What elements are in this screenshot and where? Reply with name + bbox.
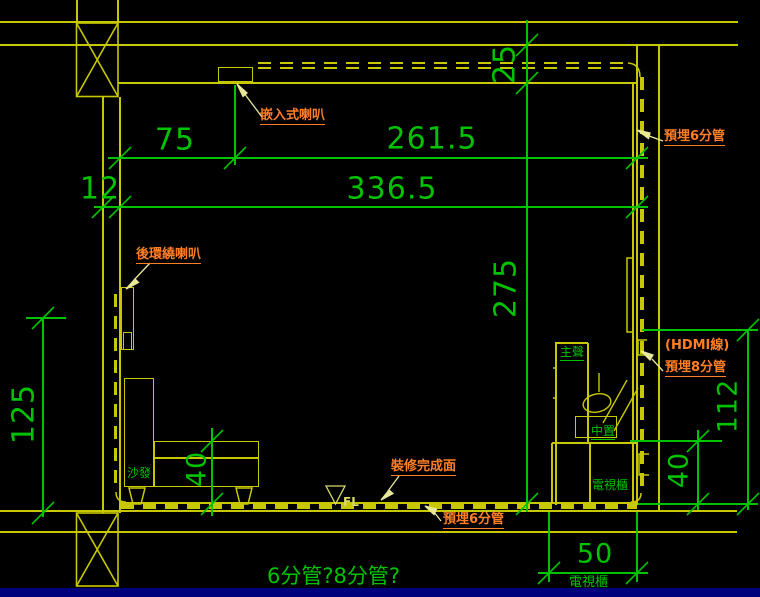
dim-text-25: 25 [488, 44, 523, 84]
dim-text-336-5: 336.5 [347, 172, 438, 207]
label-question-note: 6分管?8分管? [267, 560, 400, 590]
dim-text-261-5: 261.5 [387, 122, 478, 157]
dim-text-50: 50 [577, 539, 613, 570]
label-rear-surround-speaker: 後環繞喇叭 [136, 248, 201, 264]
dim-text-125: 125 [7, 384, 42, 444]
label-sofa: 沙發 [127, 467, 151, 480]
label-conduit6-top: 預埋6分管 [664, 130, 725, 146]
speaker-symbol [581, 373, 638, 431]
label-floor-level: FL [343, 495, 359, 509]
label-main-speaker: 主聲 [560, 346, 584, 361]
drawing-symbols-layer [0, 0, 760, 597]
column-top-left [77, 23, 119, 97]
conduit-elbows [116, 63, 649, 502]
dim-text-40-sofa: 40 [182, 451, 213, 487]
label-finish-surface: 裝修完成面 [391, 460, 456, 476]
label-center-speaker: 中置 [591, 425, 615, 440]
dim-text-275: 275 [489, 258, 524, 318]
dim-text-75: 75 [155, 123, 195, 158]
label-ceiling-speaker: 嵌入式喇叭 [260, 109, 325, 125]
dim-text-40-right: 40 [664, 452, 695, 488]
dim-text-12: 12 [80, 172, 120, 207]
label-hdmi-cable: (HDMI線) [665, 339, 729, 354]
bottom-blue-bar [0, 588, 760, 597]
column-bottom-left [77, 513, 119, 586]
dim-text-112: 112 [713, 379, 744, 434]
label-tv-cabinet: 電視櫃 [592, 479, 628, 492]
label-conduit8: 預埋8分管 [665, 361, 726, 377]
sofa-legs [129, 488, 252, 504]
label-conduit6-bottom: 預埋6分管 [443, 513, 504, 529]
cad-elevation-drawing: 75 261.5 336.5 12 25 275 125 40 40 112 5… [0, 0, 760, 597]
